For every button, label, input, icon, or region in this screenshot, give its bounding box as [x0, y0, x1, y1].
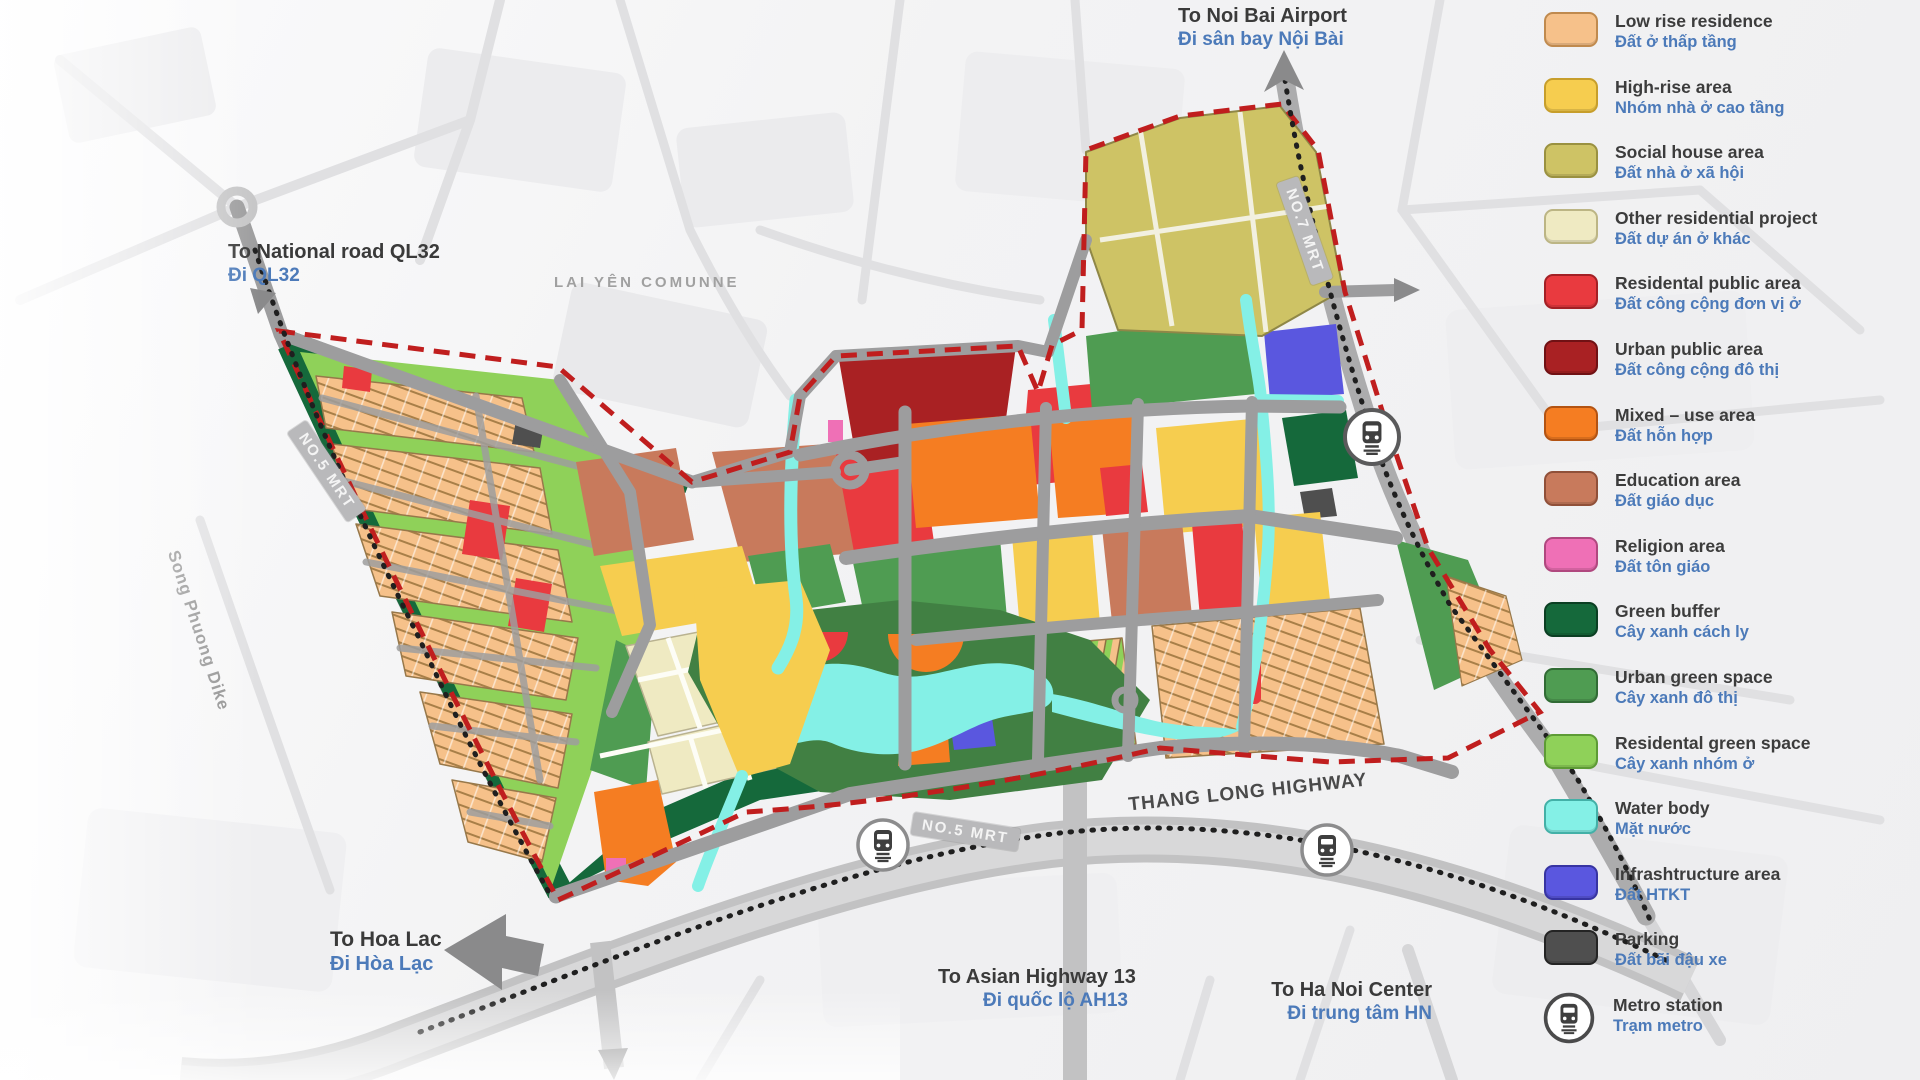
legend-label-vi: Cây xanh cách ly: [1615, 622, 1749, 643]
legend-swatch: [1544, 209, 1598, 244]
legend-label-en: Education area: [1615, 470, 1740, 491]
metro-station-icon: [1345, 410, 1399, 464]
legend-item: Education areaĐất giáo dục: [1544, 470, 1916, 536]
education-east: [1102, 522, 1192, 622]
religion-small: [828, 420, 843, 442]
legend-label-vi: Đất công cộng đô thị: [1615, 360, 1779, 381]
legend-swatch: [1544, 143, 1598, 178]
direction-vi: Đi trung tâm HN: [1200, 1003, 1432, 1025]
legend-item: Urban public areaĐất công cộng đô thị: [1544, 339, 1916, 405]
legend-label-en: Infrashtructure area: [1615, 864, 1780, 885]
legend-swatch: [1544, 12, 1598, 47]
legend-label-en: Green buffer: [1615, 601, 1749, 622]
direction-vi: Đi QL32: [228, 265, 440, 287]
legend-item: Metro stationTrạm metro: [1544, 995, 1916, 1061]
legend-label-vi: Đất ở thấp tầng: [1615, 32, 1773, 53]
legend-label-en: Metro station: [1613, 995, 1723, 1016]
legend-label-en: Urban green space: [1615, 667, 1773, 688]
legend-label-vi: Đất giáo dục: [1615, 491, 1740, 512]
legend-label-en: High-rise area: [1615, 77, 1784, 98]
legend-label-en: Residental public area: [1615, 273, 1801, 294]
legend-label-vi: Đất bãi đậu xe: [1615, 950, 1727, 971]
legend-item: Low rise residenceĐất ở thấp tầng: [1544, 11, 1916, 77]
legend-swatch: [1544, 668, 1598, 703]
legend-label-en: Parking: [1615, 929, 1727, 950]
masterplan-map: To Noi Bai Airport Đi sân bay Nội Bài To…: [0, 0, 1920, 1080]
legend-item: High-rise areaNhóm nhà ở cao tầng: [1544, 77, 1916, 143]
legend-label-en: Low rise residence: [1615, 11, 1773, 32]
legend: Low rise residenceĐất ở thấp tầngHigh-ri…: [1544, 11, 1916, 1061]
legend-label-vi: Trạm metro: [1613, 1016, 1723, 1037]
legend-item: ParkingĐất bãi đậu xe: [1544, 929, 1916, 995]
infrastructure-area: [1264, 324, 1344, 400]
direction-vi: Đi sân bay Nội Bài: [1178, 29, 1347, 51]
direction-en: To National road QL32: [228, 241, 440, 265]
legend-swatch: [1544, 865, 1598, 900]
legend-swatch: [1544, 734, 1598, 769]
legend-label-vi: Đất HTKT: [1615, 885, 1780, 906]
legend-label-vi: Đất hỗn hợp: [1615, 426, 1755, 447]
arrow-east: [1394, 278, 1420, 302]
legend-item: Urban green spaceCây xanh đô thị: [1544, 667, 1916, 733]
legend-item: Other residential projectĐất dự án ở khá…: [1544, 208, 1916, 274]
label-to-ah13: To Asian Highway 13 Đi quốc lộ AH13: [938, 966, 1128, 1012]
metro-station-icon: [858, 820, 908, 870]
legend-item: Mixed – use areaĐất hỗn hợp: [1544, 405, 1916, 471]
legend-swatch: [1544, 406, 1598, 441]
direction-vi: Đi Hòa Lạc: [330, 953, 442, 977]
direction-en: To Noi Bai Airport: [1178, 5, 1347, 29]
legend-item: Social house areaĐất nhà ở xã hội: [1544, 142, 1916, 208]
legend-swatch: [1544, 537, 1598, 572]
legend-label-vi: Đất công cộng đơn vị ở: [1615, 294, 1801, 315]
label-to-hanoi-center: To Ha Noi Center Đi trung tâm HN: [1200, 979, 1432, 1025]
legend-item: Water bodyMặt nước: [1544, 798, 1916, 864]
legend-label-vi: Đất nhà ở xã hội: [1615, 163, 1764, 184]
legend-label-en: Social house area: [1615, 142, 1764, 163]
legend-swatch: [1544, 930, 1598, 965]
legend-label-vi: Mặt nước: [1615, 819, 1710, 840]
legend-label-vi: Đất dự án ở khác: [1615, 229, 1817, 250]
legend-label-en: Other residential project: [1615, 208, 1817, 229]
direction-en: To Ha Noi Center: [1200, 979, 1432, 1003]
metro-station-icon: [1302, 825, 1352, 875]
direction-vi: Đi quốc lộ AH13: [938, 990, 1128, 1012]
legend-swatch: [1544, 274, 1598, 309]
legend-swatch: [1544, 78, 1598, 113]
legend-item: Infrashtructure areaĐất HTKT: [1544, 864, 1916, 930]
label-to-ql32: To National road QL32 Đi QL32: [228, 241, 440, 287]
label-to-hoa-lac: To Hoa Lac Đi Hòa Lạc: [330, 928, 442, 976]
legend-label-en: Religion area: [1615, 536, 1725, 557]
legend-swatch: [1544, 340, 1598, 375]
legend-swatch: [1544, 799, 1598, 834]
legend-label-vi: Cây xanh nhóm ở: [1615, 754, 1811, 775]
legend-label-en: Mixed – use area: [1615, 405, 1755, 426]
direction-en: To Asian Highway 13: [938, 966, 1128, 990]
legend-label-vi: Đất tôn giáo: [1615, 557, 1725, 578]
legend-item: Green bufferCây xanh cách ly: [1544, 601, 1916, 667]
legend-swatch: [1544, 602, 1598, 637]
legend-swatch: [1544, 471, 1598, 506]
legend-item: Religion areaĐất tôn giáo: [1544, 536, 1916, 602]
legend-item: Residental green spaceCây xanh nhóm ở: [1544, 733, 1916, 799]
label-lai-yen-commune: LAI YÊN COMUNNE: [554, 274, 740, 291]
legend-label-vi: Nhóm nhà ở cao tầng: [1615, 98, 1784, 119]
metro-station-icon: [1542, 991, 1596, 1045]
legend-label-en: Water body: [1615, 798, 1710, 819]
legend-label-vi: Cây xanh đô thị: [1615, 688, 1773, 709]
legend-label-en: Urban public area: [1615, 339, 1779, 360]
legend-label-en: Residental green space: [1615, 733, 1811, 754]
legend-item: Residental public areaĐất công cộng đơn …: [1544, 273, 1916, 339]
direction-en: To Hoa Lac: [330, 928, 442, 953]
label-to-noi-bai-airport: To Noi Bai Airport Đi sân bay Nội Bài: [1178, 5, 1347, 51]
